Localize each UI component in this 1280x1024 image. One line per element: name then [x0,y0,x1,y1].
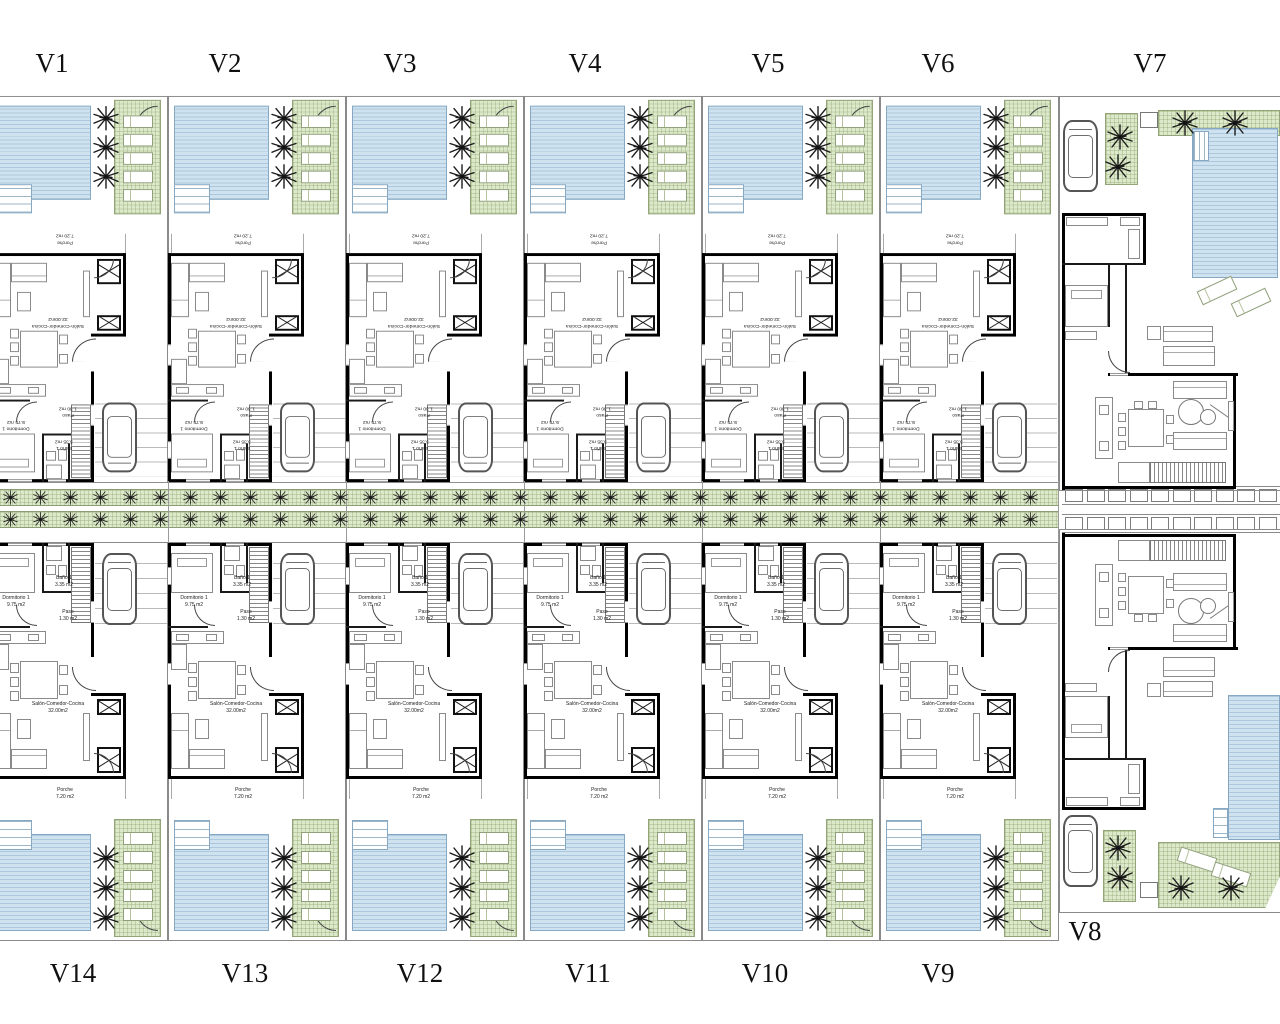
street-tree-icon [993,512,1008,527]
room-label-porche: Porche7.20 m2 [925,787,985,800]
pool-steps [174,184,210,213]
shape [664,491,678,505]
shape: 3.35 m2 [220,582,264,589]
paver [1216,489,1234,502]
street-tree-icon [723,512,738,527]
closet [453,315,477,331]
bed [883,553,925,593]
room-label-salon: Salón-Comedor-Cocina32.00m2 [554,316,630,329]
room-label-bano: Baño 13.35 m2 [932,438,976,451]
wall [1062,533,1065,810]
paver [1259,489,1277,502]
shape [34,513,48,527]
room-label-porche: Porche7.20 m2 [213,233,273,246]
street-tree-icon [903,512,918,527]
tv-unit [439,271,446,318]
sun-lounger [835,870,865,883]
shape: 9.75 m2 [704,419,752,425]
shower [580,465,596,480]
street-tree-icon [693,490,708,505]
wall [1062,486,1236,489]
paver [1194,517,1212,530]
car [280,403,315,473]
sun-lounger [1013,908,1043,921]
kitchen-counter [1066,217,1108,226]
car [814,553,849,625]
wall [981,371,984,482]
house-v8 [1062,533,1238,810]
street-tree-icon [123,490,138,505]
villa-lot: Dormitorio 19.75 m2 Baño 13.35 m2 Paso1.… [524,543,702,940]
hob-icon [562,387,573,394]
closet [631,315,655,331]
sun-lounger [657,189,687,202]
kitchen-sink-icon [1099,572,1109,582]
palm-tree-icon [805,135,831,160]
shape: Salón-Comedor-Cocina [20,322,96,328]
door-swing [962,338,986,361]
hob-icon [1099,608,1109,618]
chair [1134,614,1143,622]
street-tree-icon [723,490,738,505]
chair [1118,413,1126,422]
window [226,479,244,482]
sun-lounger [657,870,687,883]
shape [454,513,468,527]
closet [275,315,299,331]
shape [34,491,48,505]
bed [527,434,569,473]
shape [994,513,1008,527]
chair [415,665,424,675]
chair [722,356,731,366]
sun-lounger [301,152,331,165]
window [48,479,66,482]
street-green-band [0,489,1058,506]
shape [244,491,258,505]
shape: 7.20 m2 [747,794,807,801]
wall [932,434,963,436]
room-label-salon: Salón-Comedor-Cocina32.00m2 [732,701,808,714]
palm-tree-icon [93,106,119,131]
palm-tree-icon [93,905,119,931]
chair [900,342,909,352]
shower [758,546,774,561]
villa-lot: Dormitorio 19.75 m2 Baño 13.35 m2 Paso1.… [346,97,524,482]
sofa [901,263,937,282]
shape [364,491,378,505]
door-swing [550,605,571,626]
chair [188,342,197,352]
dining-table [732,661,770,699]
paver [1151,489,1169,502]
street-tree-icon [33,512,48,527]
shape: 32.00m2 [554,708,630,715]
street-tree-icon [603,490,618,505]
shape [184,513,198,527]
street-tree-icon [363,512,378,527]
shape [514,491,528,505]
sun-lounger [301,189,331,202]
kitchen-cabinet [883,359,899,384]
shape [604,491,618,505]
sofa [705,713,723,769]
coffee-table [17,292,31,311]
sun-lounger [479,851,509,864]
closet [1065,331,1097,340]
shape [628,136,652,159]
hob-icon [918,387,929,394]
shape [964,513,978,527]
shower [224,465,240,480]
chair [188,329,197,339]
palm-tree-icon [1168,875,1194,901]
bed [171,553,213,593]
window [898,479,922,482]
shape [1024,513,1038,527]
shape: 1.30 m2 [758,616,802,623]
room-label-dormitorio: Dormitorio 19.75 m2 [526,419,574,432]
window [720,479,744,482]
wall [0,626,30,628]
dining-table [732,331,770,368]
paver [1108,489,1126,502]
room-label-salon: Salón-Comedor-Cocina32.00m2 [20,701,96,714]
shape [484,513,498,527]
chair [1118,573,1126,582]
street-tree-icon [693,512,708,527]
sun-lounger [479,152,509,165]
shape: 7.20 m2 [925,794,985,801]
wall [981,693,1016,696]
chair [10,342,19,352]
shape [806,906,830,930]
villa-lot: Dormitorio 19.75 m2 Baño 13.35 m2 Paso1.… [168,543,346,940]
shape [628,906,652,930]
kitchen-sink-icon [888,387,901,394]
side-table [1147,326,1161,340]
tv-unit [973,713,980,761]
paver [1108,517,1126,530]
room-label-dormitorio: Dormitorio 19.75 m2 [348,595,396,608]
room-label-porche: Porche7.20 m2 [747,787,807,800]
door-swing [16,605,37,626]
shape [94,165,118,188]
window [898,543,922,546]
coffee-table [373,292,387,311]
street-tree-icon [453,512,468,527]
paver [1151,517,1169,530]
chair [900,356,909,366]
unit-label-v5: V5 [752,48,785,79]
palm-tree-icon [1105,835,1131,861]
street-tree-icon [423,490,438,505]
wall [91,693,126,696]
chair [10,356,19,366]
street-tree-icon [483,512,498,527]
dining-table [554,331,592,368]
room-label-porche: Porche7.20 m2 [569,233,629,246]
shape: 3.35 m2 [754,582,798,589]
wall [1013,693,1016,779]
window [364,479,388,482]
paver [1173,489,1191,502]
wall [981,543,984,657]
chair [1118,427,1126,436]
sun-lounger [1013,851,1043,864]
sofa [545,749,581,769]
wall [1062,263,1145,265]
wall [447,334,482,337]
sink [580,451,590,461]
kitchen-sink-icon [176,387,189,394]
bed [527,553,569,593]
sun-lounger [835,851,865,864]
sun-lounger [835,832,865,845]
villa-lot: Dormitorio 19.75 m2 Baño 13.35 m2 Paso1.… [702,97,880,482]
room-label-dormitorio: Dormitorio 19.75 m2 [0,595,40,608]
pool-steps [1213,808,1228,838]
shape [784,491,798,505]
room-label-dormitorio: Dormitorio 19.75 m2 [170,419,218,432]
paver [1065,489,1083,502]
bed [1065,696,1108,738]
window [8,479,32,482]
door-swing [962,667,986,691]
palm-tree-icon [449,845,475,871]
sun-lounger [301,171,331,184]
shape: 9.75 m2 [704,602,752,609]
kitchen-sink-icon [0,387,11,394]
shape: 1.30 m2 [758,405,802,411]
kitchen-counter [1120,217,1140,226]
chair [415,354,424,364]
shape [94,906,118,930]
chair [415,685,424,695]
villa-lot: Dormitorio 19.75 m2 Baño 13.35 m2 Paso1.… [524,97,702,482]
kitchen-counter [1066,797,1108,806]
wall [1062,807,1145,810]
sofa [1163,657,1215,677]
shape [124,491,138,505]
wall [269,693,304,696]
palm-tree-icon [271,875,297,901]
sofa [883,263,901,317]
pool-steps [352,184,388,213]
coffee-table [907,719,921,739]
room-label-bano: Baño 13.35 m2 [398,438,442,451]
room-label-salon: Salón-Comedor-Cocina32.00m2 [910,701,986,714]
street-tree-icon [873,490,888,505]
wall [398,434,429,436]
sun-lounger [123,152,153,165]
room-label-porche: Porche7.20 m2 [391,787,451,800]
wall [220,434,251,436]
tv-unit [795,713,802,761]
palm-tree-icon [1107,865,1133,891]
room-label-paso: Paso1.30 m2 [224,405,268,418]
wall [803,543,806,657]
lot-boundary-line [168,481,169,543]
street-tree-icon [813,490,828,505]
door-swing [428,338,452,361]
shape [814,513,828,527]
site-plan: V7 V8 [0,0,1280,1024]
shape [450,876,474,900]
car [280,553,315,625]
shape: Baño 1 [220,445,264,451]
shape [904,491,918,505]
shape: Salón-Comedor-Cocina [732,322,808,328]
unit-label-v2: V2 [209,48,242,79]
unit-label-v3: V3 [384,48,417,79]
shape [1219,876,1243,900]
shape [64,513,78,527]
sink [936,565,946,575]
closet [1065,683,1097,692]
chair [10,691,19,701]
chair [237,335,246,345]
chair [949,665,958,675]
shape [634,513,648,527]
chair [59,665,68,675]
sofa [1173,432,1227,450]
kitchen-cabinet [171,359,187,384]
tv-unit [261,713,268,761]
street-green-band [0,511,1058,528]
bed [0,434,35,473]
tv-unit [439,713,446,761]
shape: 3.35 m2 [576,438,620,444]
shape: Porche [569,239,629,245]
shape [184,491,198,505]
shape [806,165,830,188]
shower [758,465,774,480]
door-swing [1108,650,1130,672]
sofa [1163,681,1213,697]
palm-tree-icon [1172,110,1198,136]
street-tree-icon [303,512,318,527]
shape [394,491,408,505]
dining-table [198,331,236,368]
shape [806,136,830,159]
kitchen-sink-icon [176,634,189,641]
chair [366,663,375,673]
sun-lounger [1013,152,1043,165]
door-swing [194,605,215,626]
pool [1228,695,1280,840]
dining-table [1128,409,1164,447]
kitchen-cabinet [527,359,543,384]
door-swing [606,338,630,361]
wall [1233,376,1236,486]
chair [1148,401,1157,409]
room-label-bano: Baño 13.35 m2 [932,575,976,588]
bed [349,553,391,593]
chair [188,356,197,366]
shower [580,546,596,561]
wall [524,400,564,402]
wall [91,334,126,337]
wall [524,253,660,256]
door-swing [72,667,96,691]
shape: Baño 1 [398,445,442,451]
street-tree-icon [273,490,288,505]
shape [814,491,828,505]
kitchen-cabinet [705,644,721,670]
wall [880,626,920,628]
shape [274,491,288,505]
wall [1062,758,1145,760]
street-tree-icon [213,490,228,505]
door-gap [269,601,272,623]
chair [593,354,602,364]
sun-lounger [835,189,865,202]
chair [900,329,909,339]
door-swing [784,338,808,361]
room-label-porche: Porche7.20 m2 [925,233,985,246]
closet [809,699,833,715]
unit-label-v13: V13 [222,958,269,989]
palm-tree-icon [983,164,1009,189]
shape [154,513,168,527]
kitchen-sink-icon [710,387,723,394]
sun-lounger [835,171,865,184]
palm-tree-icon [805,875,831,901]
chair [722,677,731,687]
palm-tree-icon [805,905,831,931]
wall [447,371,450,482]
shape [450,846,474,870]
shape: 9.75 m2 [526,419,574,425]
shape: 7.20 m2 [569,233,629,239]
chair [593,335,602,345]
hob-icon [562,634,573,641]
shape: 3.35 m2 [42,438,86,444]
hob-icon [384,634,395,641]
shape: Porche [925,239,985,245]
chair [544,677,553,687]
chair [366,342,375,352]
door-gap [625,601,628,623]
chair [722,663,731,673]
window [404,479,422,482]
villa-lot-v7 [1060,97,1280,490]
paver [1065,517,1083,530]
shape: Dormitorio 1 [0,425,40,431]
wall [42,591,73,593]
palm-tree-icon [271,164,297,189]
shape: Paso [402,412,446,418]
shape: Salón-Comedor-Cocina [198,322,274,328]
shape: 7.20 m2 [391,794,451,801]
shower [936,465,952,480]
wall [524,626,564,628]
hob-icon [206,387,217,394]
street-tree-icon [543,490,558,505]
palm-tree-icon [271,905,297,931]
chair [900,663,909,673]
wall [269,543,272,657]
sofa [1173,573,1227,591]
room-label-salon: Salón-Comedor-Cocina32.00m2 [198,316,274,329]
palm-tree-icon [1222,110,1248,136]
sun-lounger [657,889,687,902]
wall [346,626,386,628]
wall [754,434,785,436]
shape [94,846,118,870]
pool-steps [0,820,32,850]
